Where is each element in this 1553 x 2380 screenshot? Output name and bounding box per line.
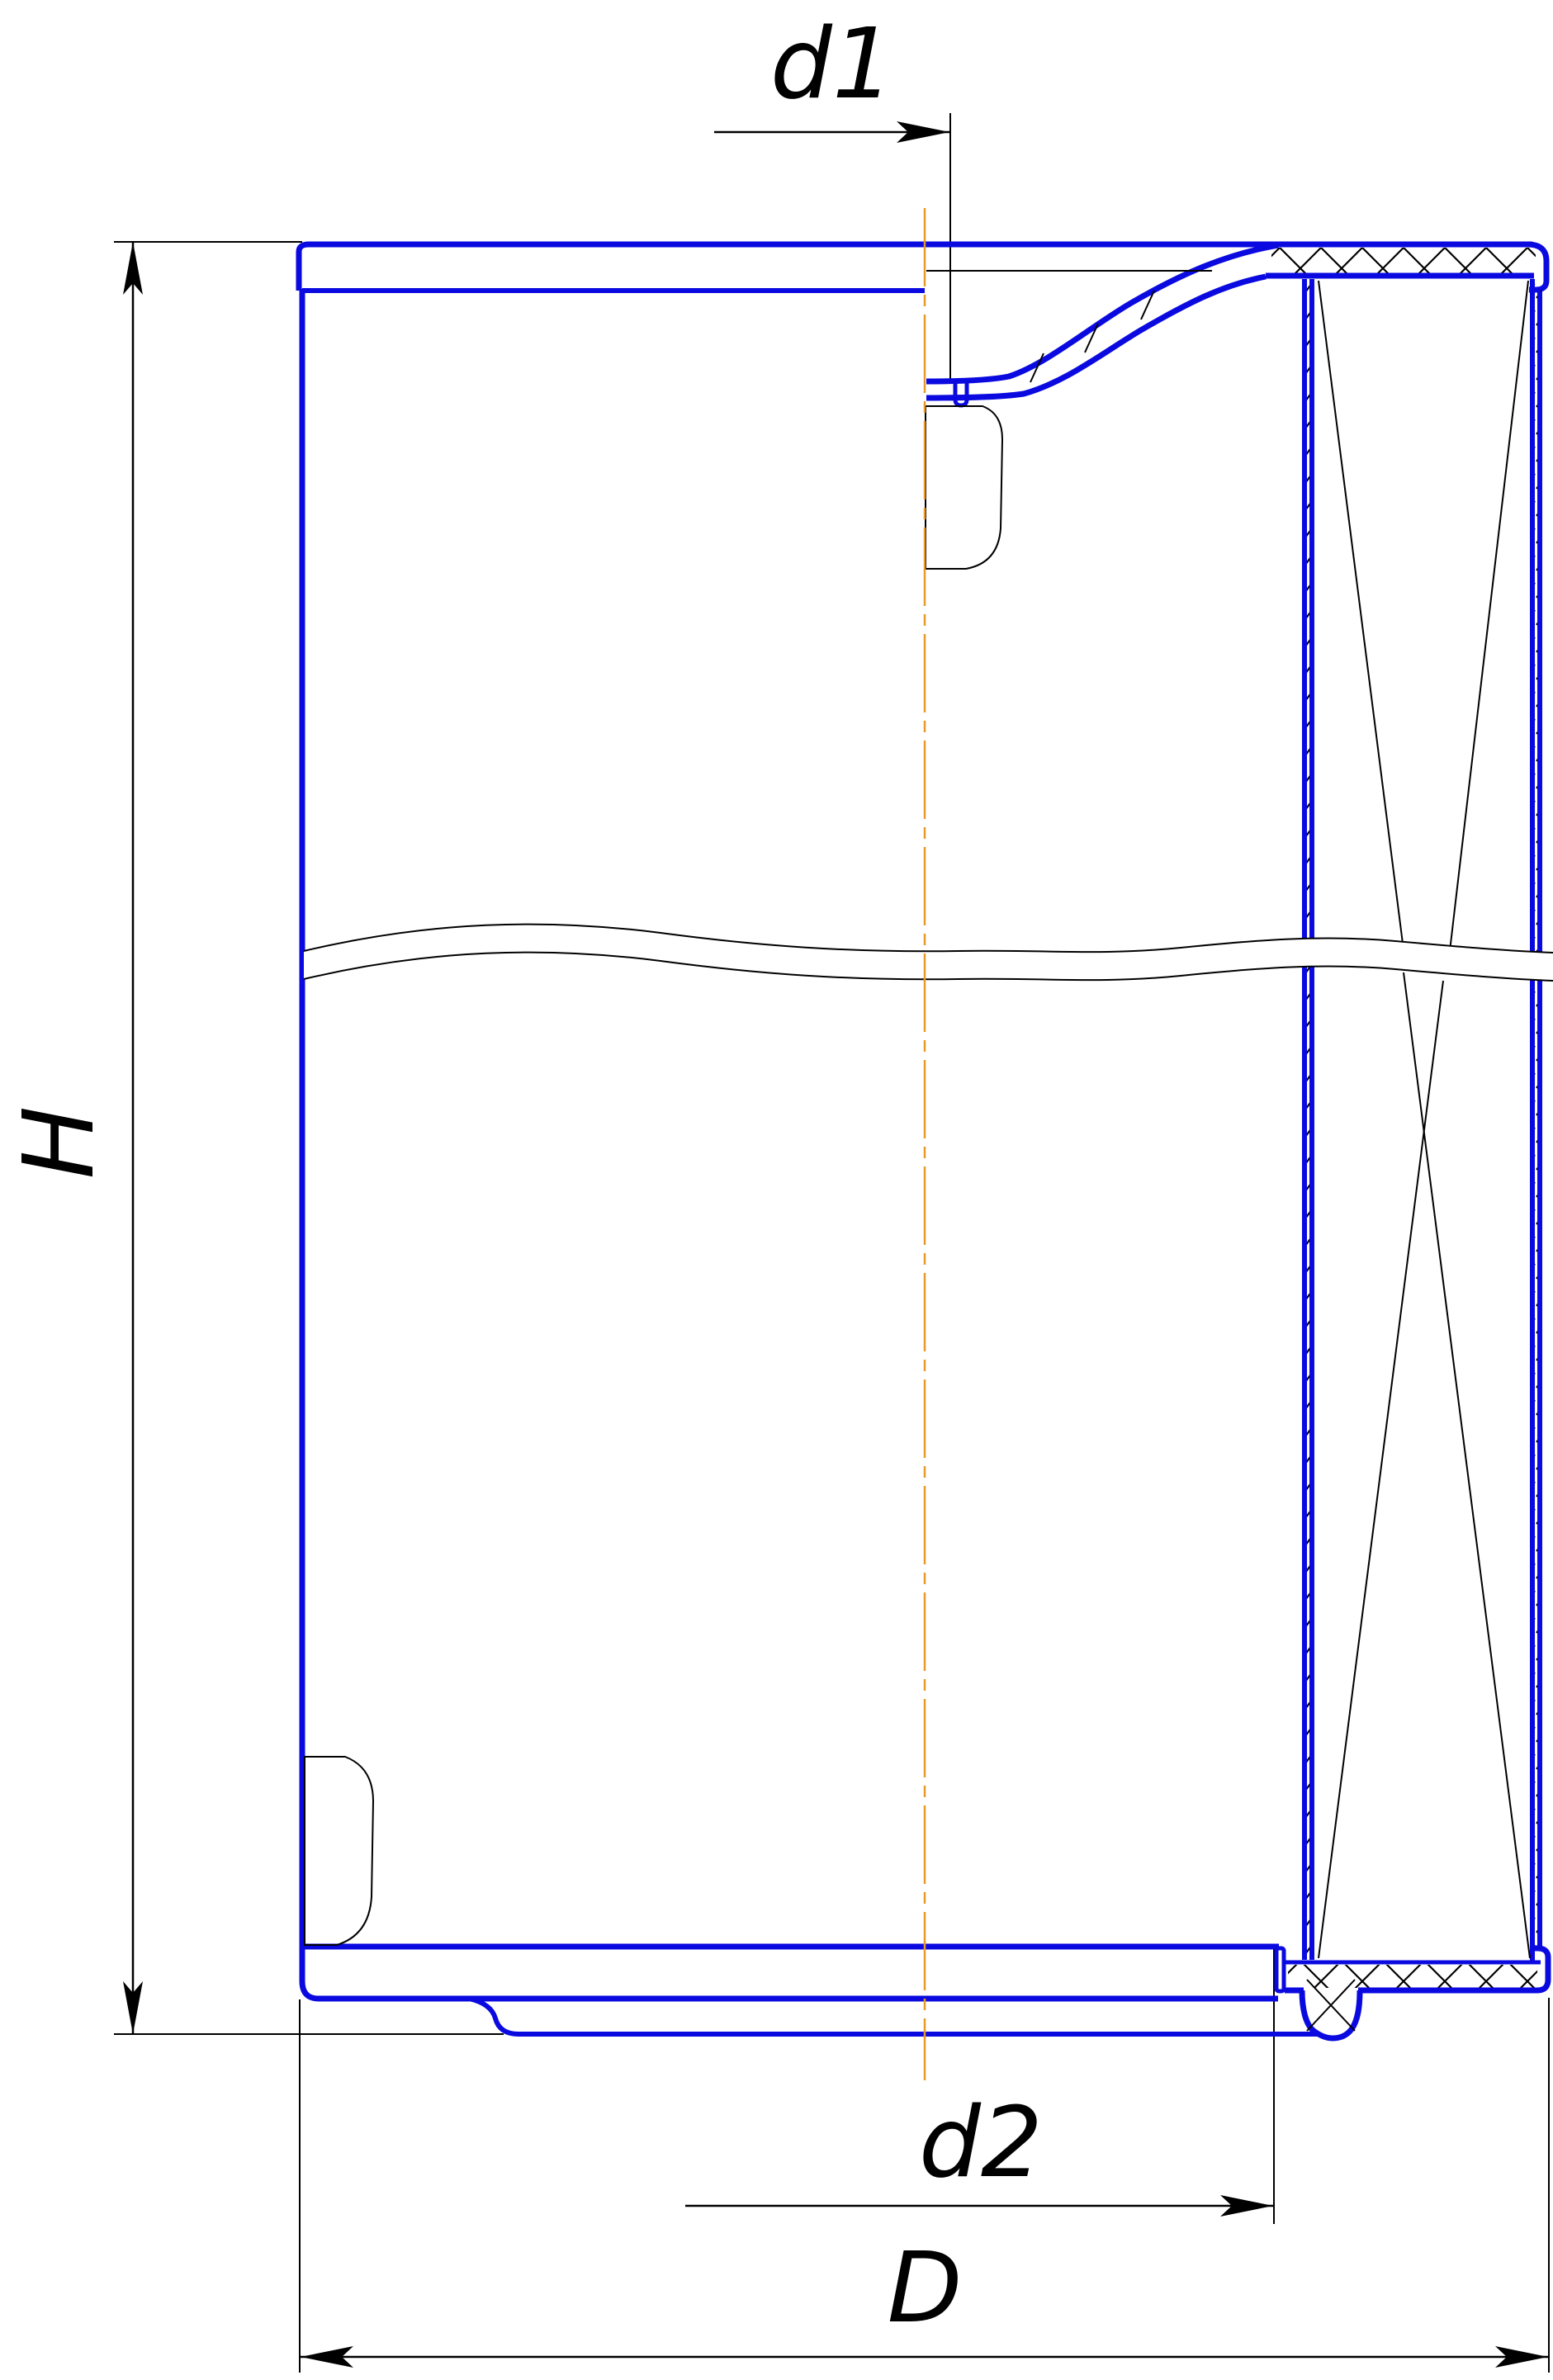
hole-lip (955, 381, 967, 405)
filter-element (299, 244, 1548, 2038)
h-label: H (2, 1106, 116, 1180)
d2-label: d2 (919, 2085, 1043, 2199)
bottom-recessed-panel (469, 1999, 1318, 2034)
pleat-line (1450, 281, 1528, 951)
mesh-patches (305, 406, 1002, 1945)
bottom-end-cap (1276, 1948, 1548, 2038)
top-adhesive-hatch (1271, 248, 1536, 273)
outer-shell (299, 244, 1546, 2034)
center-tube (1303, 279, 1314, 1960)
d1-dimension: d1 (714, 7, 950, 381)
pleat-lines (1319, 281, 1530, 1958)
bottom-seal-pocket (1302, 1990, 1360, 2038)
outer-wall-section (1530, 279, 1541, 1962)
shell-mesh-bottom-left (305, 1757, 373, 1945)
pleat-line (1404, 972, 1530, 1958)
center-tube-mesh-top (926, 406, 1002, 569)
drawing-canvas: d1 H d2 D (0, 0, 1553, 2380)
pleat-line (1319, 981, 1443, 1958)
break-lines (304, 925, 1553, 981)
funnel-outer-line (926, 245, 1278, 381)
d2-dimension: d2 (685, 1947, 1274, 2224)
bottom-left-rim (1276, 1948, 1284, 1991)
left-wall-and-bottom-flange (302, 289, 1278, 1999)
bottom-adhesive-hatch (1288, 1965, 1537, 1988)
d1-label: d1 (770, 7, 894, 121)
d-label: D (888, 2231, 963, 2345)
pleat-line (1319, 281, 1403, 944)
h-dimension: H (2, 242, 504, 2034)
top-end-cap (926, 245, 1536, 405)
